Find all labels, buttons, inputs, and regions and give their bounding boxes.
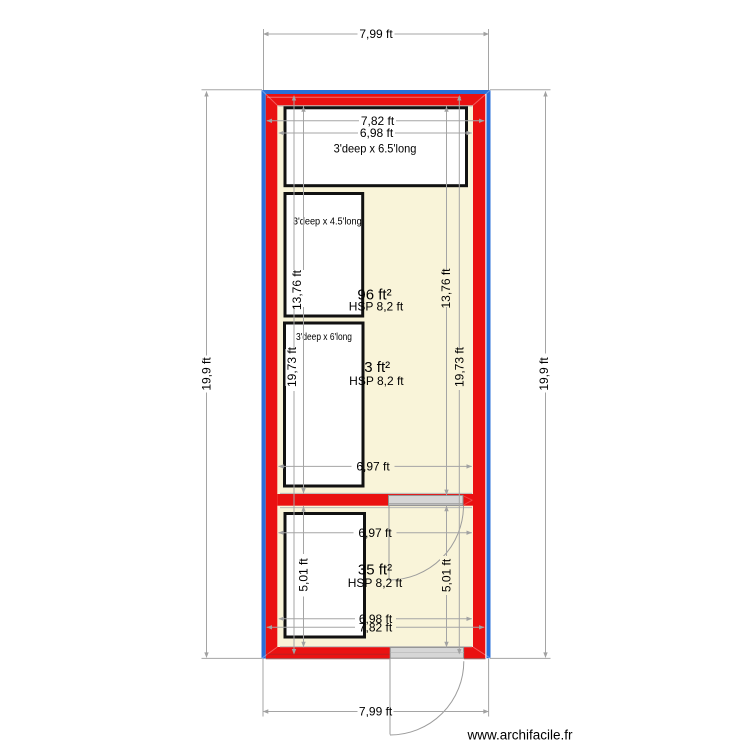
svg-text:HSP 8,2 ft: HSP 8,2 ft xyxy=(349,374,404,388)
svg-text:www.archifacile.fr: www.archifacile.fr xyxy=(467,728,574,743)
svg-text:HSP 8,2 ft: HSP 8,2 ft xyxy=(348,576,403,590)
svg-text:6,97 ft: 6,97 ft xyxy=(356,460,390,474)
svg-text:HSP 8,2 ft: HSP 8,2 ft xyxy=(349,300,404,314)
svg-text:7,82 ft: 7,82 ft xyxy=(359,621,393,635)
svg-text:19,9 ft: 19,9 ft xyxy=(200,357,214,391)
svg-text:5,01 ft: 5,01 ft xyxy=(297,558,311,592)
svg-text:13,76 ft: 13,76 ft xyxy=(290,269,304,310)
svg-text:19,9 ft: 19,9 ft xyxy=(537,357,551,391)
svg-text:13,76 ft: 13,76 ft xyxy=(439,268,453,309)
svg-text:6,98 ft: 6,98 ft xyxy=(360,126,394,140)
svg-text:3'deep x 6.5'long: 3'deep x 6.5'long xyxy=(334,143,417,155)
svg-text:19,73 ft: 19,73 ft xyxy=(285,346,299,387)
svg-text:19,73 ft: 19,73 ft xyxy=(453,346,467,387)
svg-text:6,97 ft: 6,97 ft xyxy=(358,526,392,540)
svg-text:7,99 ft: 7,99 ft xyxy=(359,705,393,719)
svg-text:5,01 ft: 5,01 ft xyxy=(440,558,454,592)
svg-text:3'deep x 6'long: 3'deep x 6'long xyxy=(296,331,352,342)
svg-text:7,99 ft: 7,99 ft xyxy=(359,27,393,41)
